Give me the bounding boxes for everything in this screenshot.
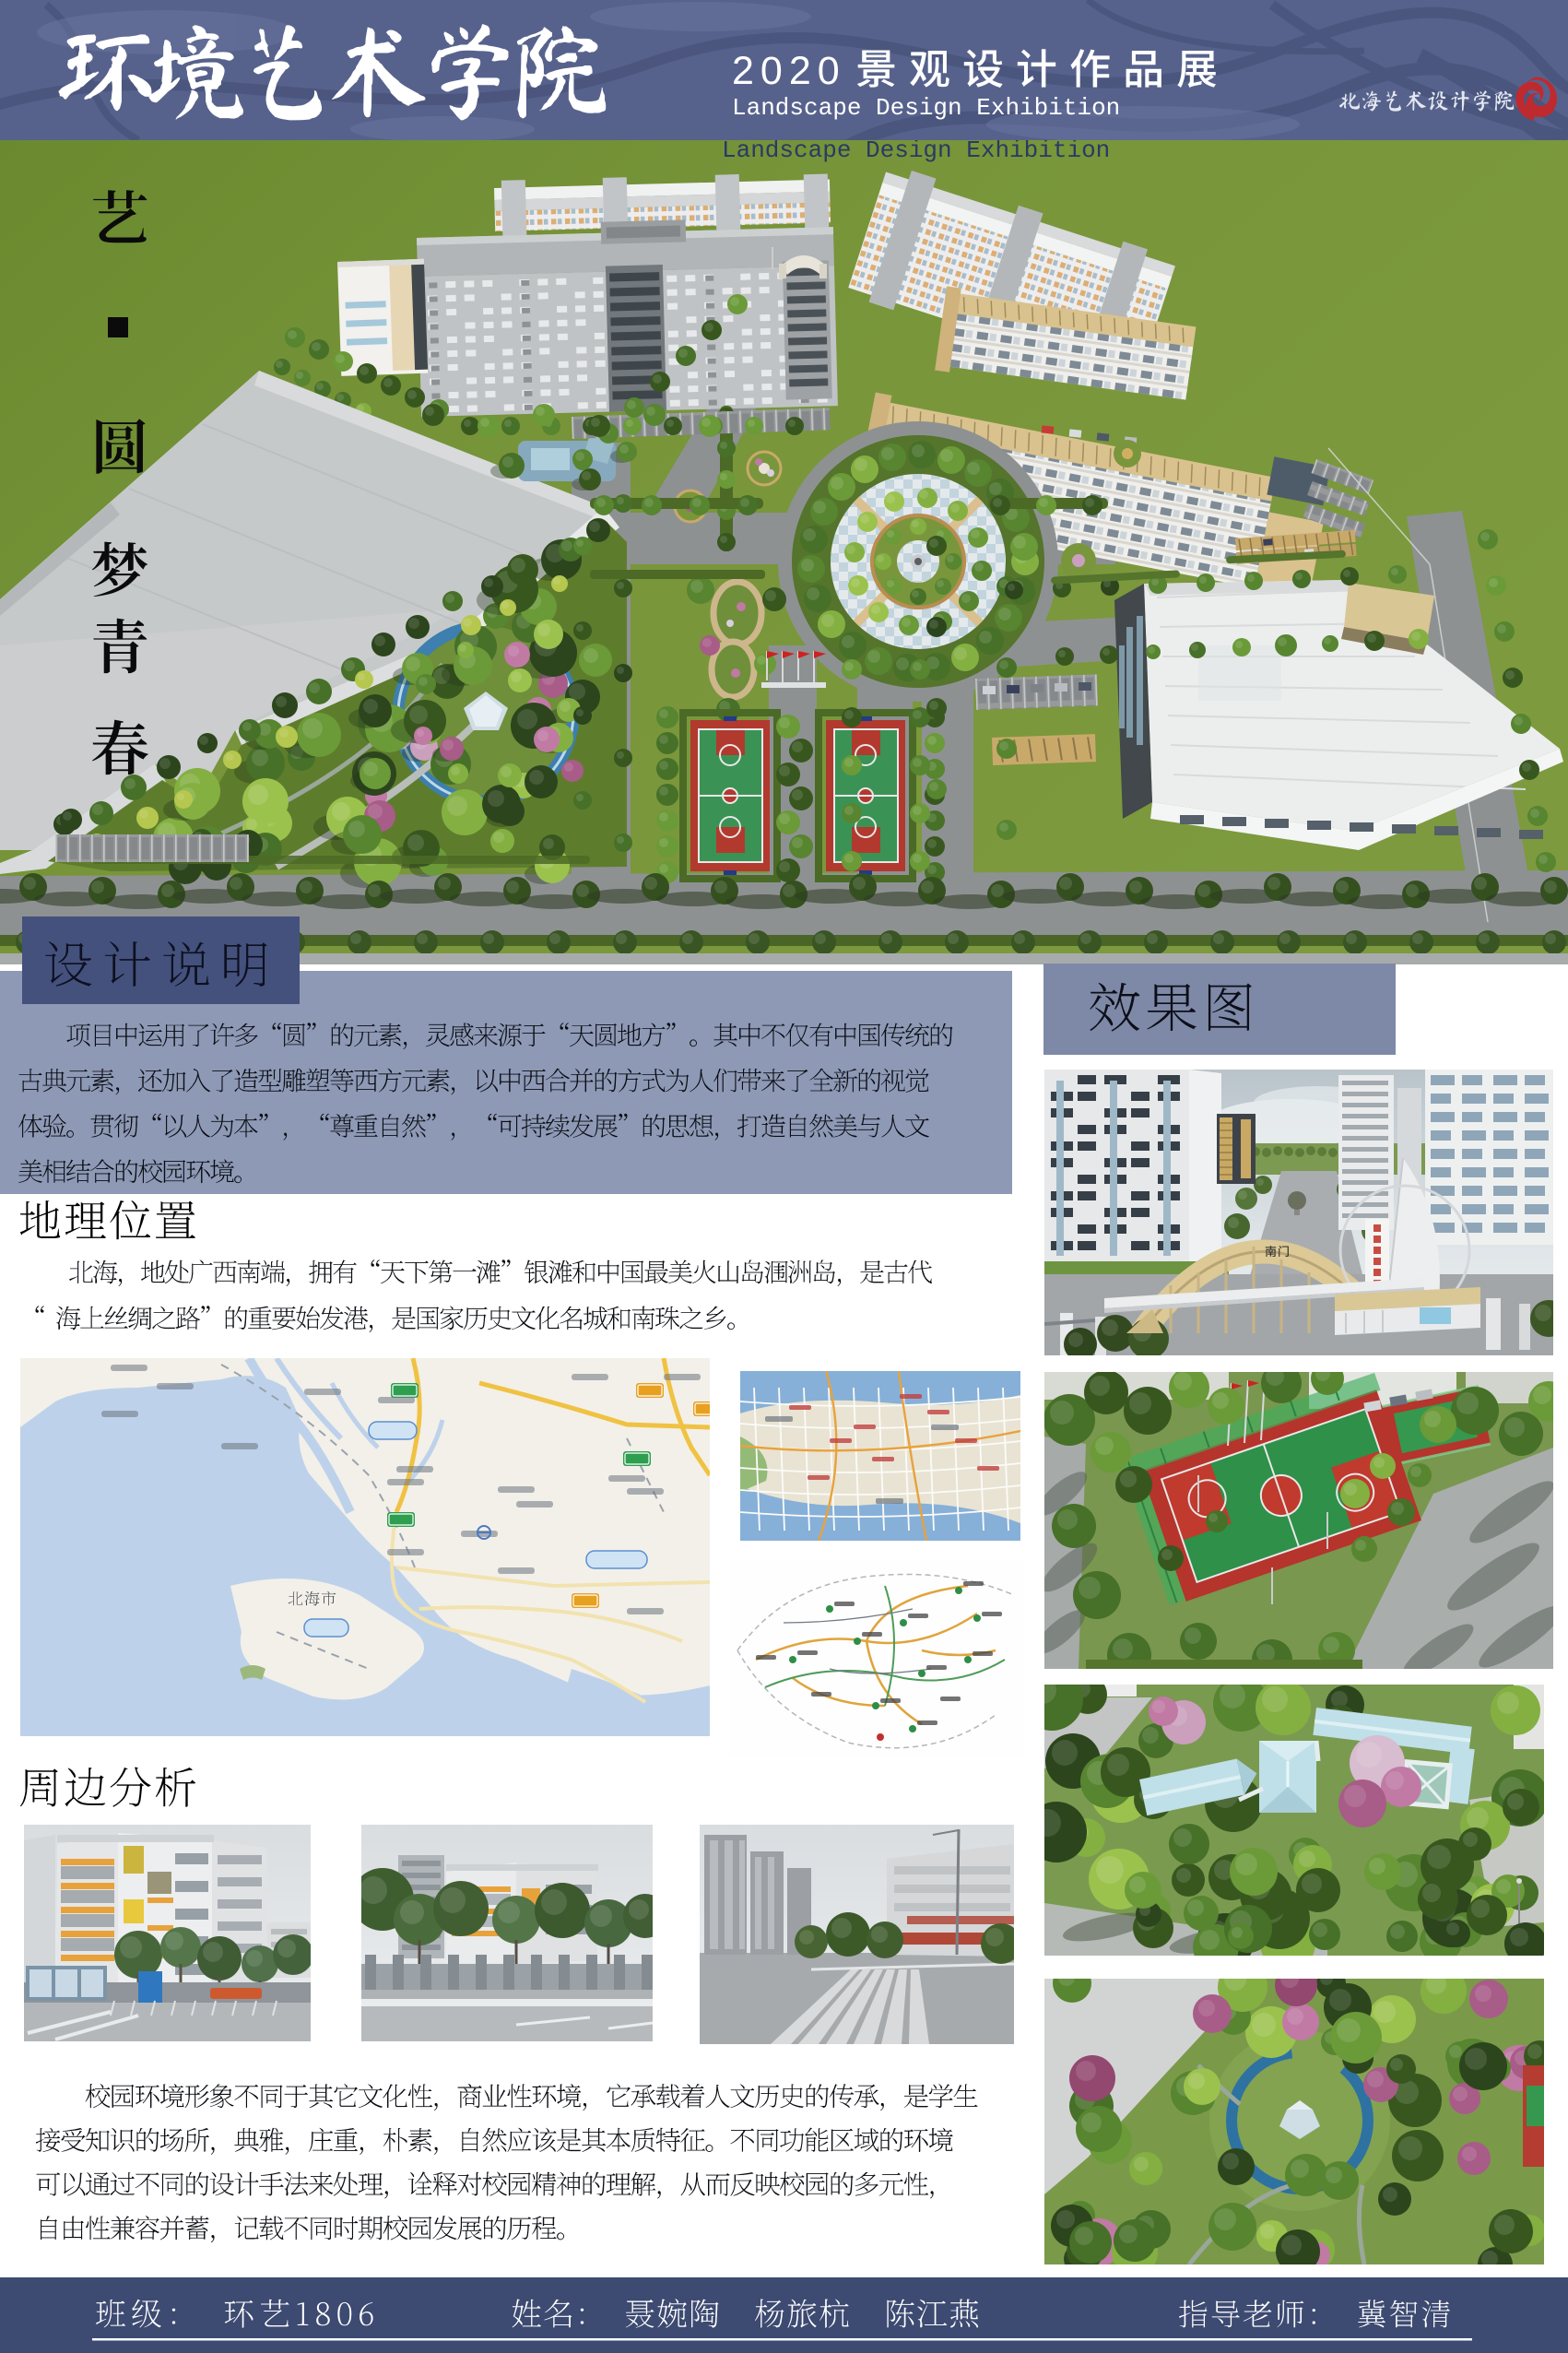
svg-text:Landscape Design Exhibition: Landscape Design Exhibition xyxy=(732,94,1120,122)
svg-text:Landscape Design Exhibition: Landscape Design Exhibition xyxy=(722,136,1110,164)
svg-text:2020: 2020 xyxy=(732,49,846,93)
